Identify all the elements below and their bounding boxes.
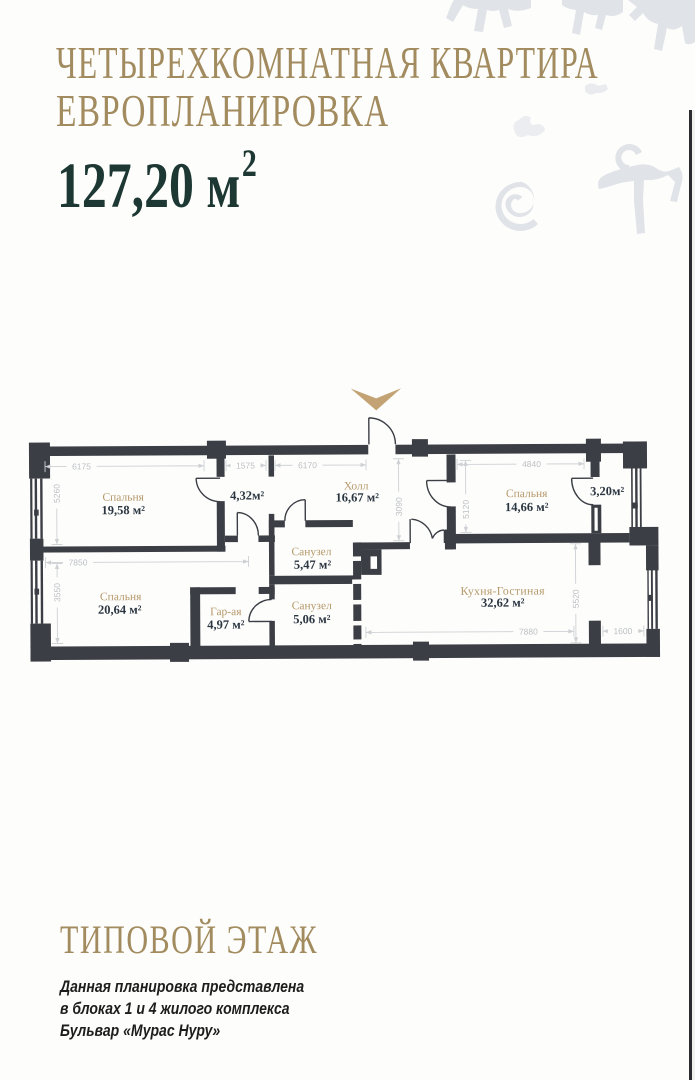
svg-text:3,20м²: 3,20м² xyxy=(590,484,624,498)
svg-text:Спальня: Спальня xyxy=(506,488,548,500)
svg-text:14,66 м²: 14,66 м² xyxy=(505,500,549,514)
svg-text:7850: 7850 xyxy=(69,557,88,567)
svg-text:7880: 7880 xyxy=(519,627,538,637)
svg-text:1575: 1575 xyxy=(236,460,255,470)
svg-text:19,58 м²: 19,58 м² xyxy=(101,503,145,517)
svg-text:4,97 м²: 4,97 м² xyxy=(207,618,245,632)
svg-text:3090: 3090 xyxy=(394,497,404,516)
svg-text:3550: 3550 xyxy=(52,583,62,602)
svg-text:32,62 м²: 32,62 м² xyxy=(481,596,525,610)
svg-text:Спальня: Спальня xyxy=(102,492,144,504)
svg-text:4840: 4840 xyxy=(522,459,541,469)
svg-text:5260: 5260 xyxy=(52,484,62,503)
svg-text:5520: 5520 xyxy=(571,589,581,608)
svg-text:5,47 м²: 5,47 м² xyxy=(294,558,332,572)
svg-text:6175: 6175 xyxy=(72,461,91,471)
svg-text:1600: 1600 xyxy=(613,626,632,636)
svg-text:16,67 м²: 16,67 м² xyxy=(335,490,379,504)
svg-text:Санузел: Санузел xyxy=(292,600,332,612)
svg-text:Гар-ая: Гар-ая xyxy=(210,606,242,618)
svg-text:20,64 м²: 20,64 м² xyxy=(98,603,142,617)
svg-text:Спальня: Спальня xyxy=(100,591,142,603)
svg-text:Санузел: Санузел xyxy=(291,546,331,558)
svg-text:5120: 5120 xyxy=(461,500,471,519)
svg-text:6170: 6170 xyxy=(298,460,317,470)
svg-text:5,06 м²: 5,06 м² xyxy=(293,612,331,626)
svg-text:4,32м²: 4,32м² xyxy=(230,488,264,502)
